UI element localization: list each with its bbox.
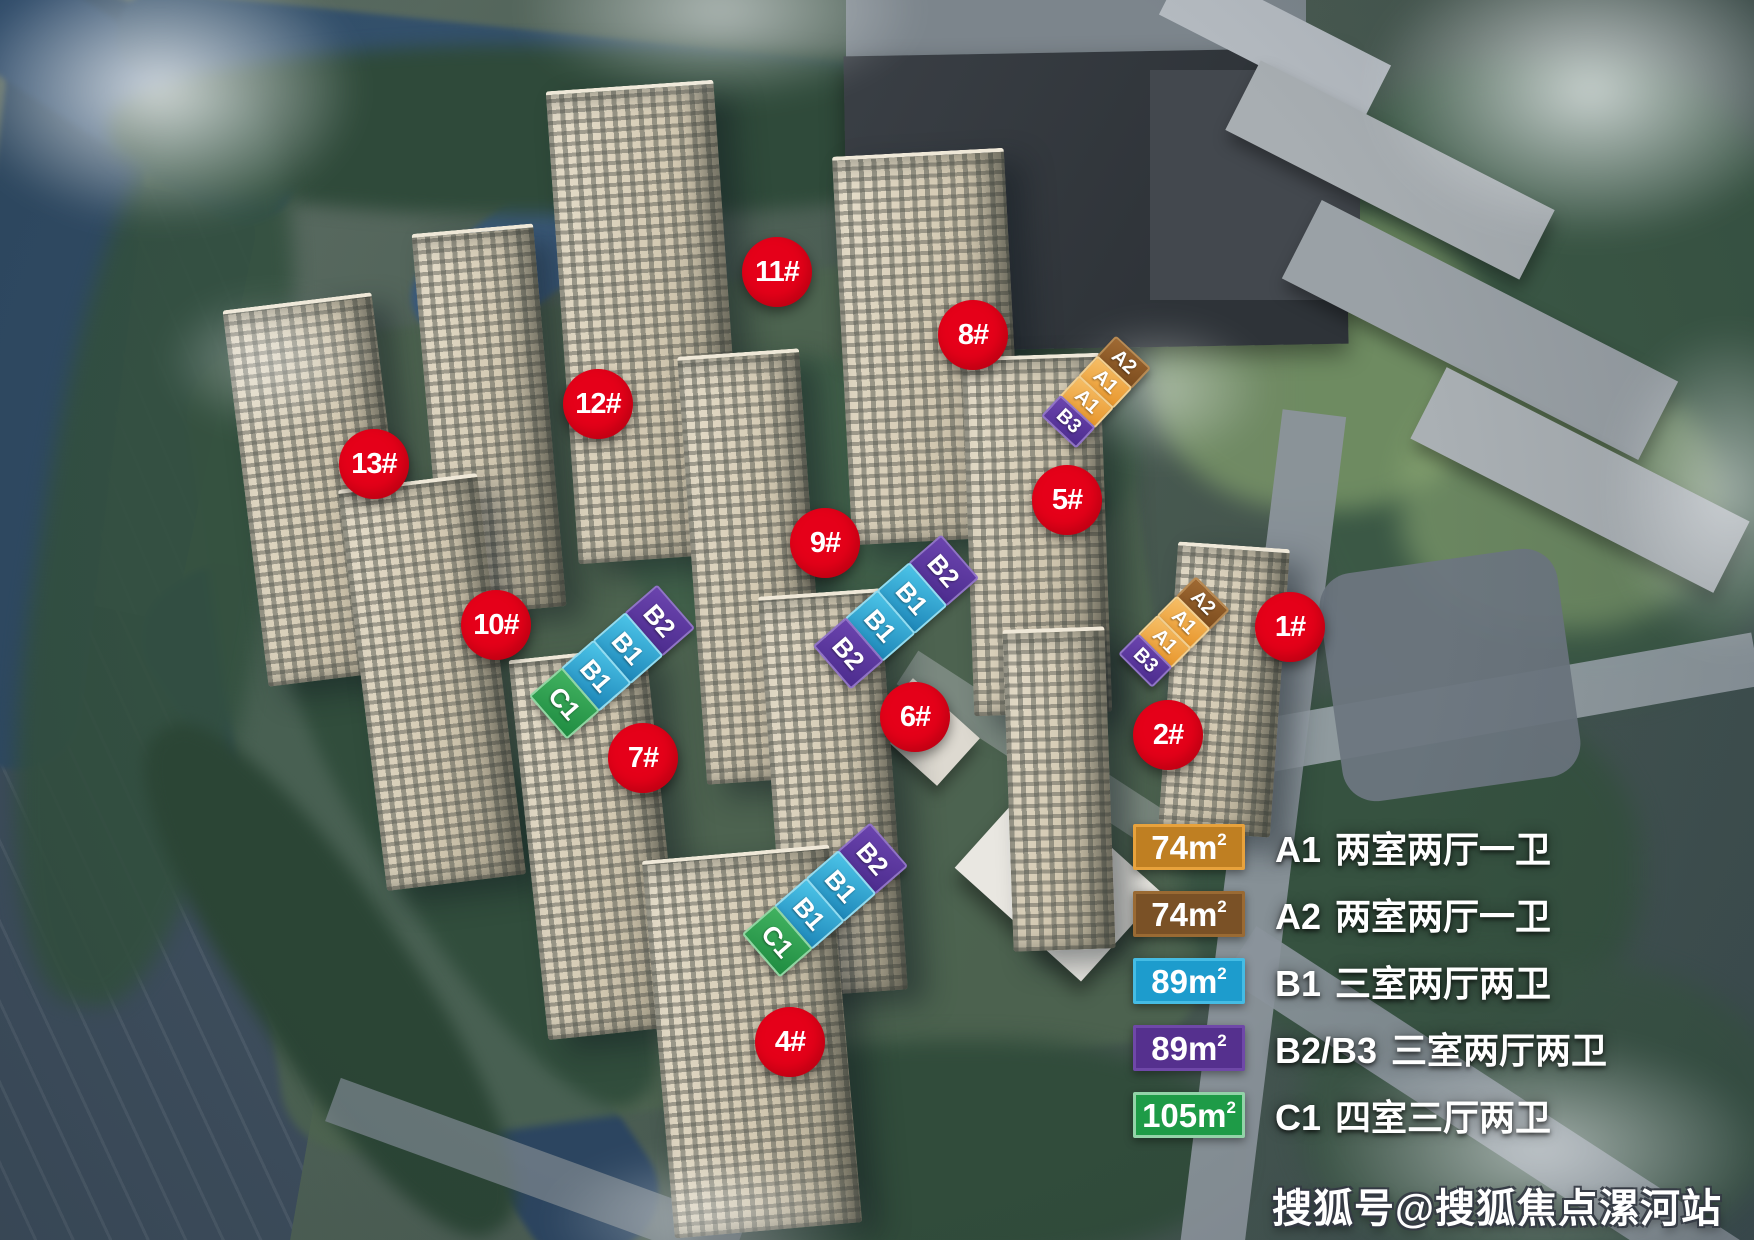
legend-label: A1两室两厅一卫 (1275, 821, 1551, 873)
mist (1010, 290, 1310, 490)
watermark: 搜狐号@搜狐焦点漯河站 (1272, 1176, 1722, 1234)
legend-area: 89m (1151, 965, 1217, 998)
legend-area: 74m (1151, 898, 1217, 931)
building-badge-6: 6# (880, 682, 950, 752)
site-plan-image: A2A1A1B3A2A1A1B3B2B1B1B2B2B1B1C1B2B1B1C1… (0, 0, 1754, 1240)
legend-swatch: 89m2 (1133, 958, 1245, 1004)
legend-desc: 两室两厅一卫 (1335, 896, 1551, 937)
legend-row: 105m2 C1四室三厅两卫 (1133, 1092, 1607, 1138)
legend-label: B1三室两厅两卫 (1275, 955, 1551, 1007)
legend-code: A2 (1275, 896, 1321, 937)
building-badge-5: 5# (1032, 465, 1102, 535)
legend-area-sup: 2 (1217, 898, 1226, 915)
building-badge-1: 1# (1255, 592, 1325, 662)
legend-swatch: 74m2 (1133, 891, 1245, 937)
mist (440, 0, 1000, 140)
mist (480, 1120, 940, 1240)
legend-swatch: 74m2 (1133, 824, 1245, 870)
legend-swatch: 105m2 (1133, 1092, 1245, 1138)
legend-desc: 四室三厅两卫 (1335, 1097, 1551, 1138)
building-badge-8: 8# (938, 300, 1008, 370)
mist (0, 0, 440, 280)
legend-desc: 三室两厅两卫 (1391, 1030, 1607, 1071)
building-badge-2: 2# (1133, 700, 1203, 770)
legend-row: 89m2 B2/B3三室两厅两卫 (1133, 1025, 1607, 1071)
legend-row: 74m2 A2两室两厅一卫 (1133, 891, 1607, 937)
legend-desc: 两室两厅一卫 (1335, 829, 1551, 870)
building-badge-9: 9# (790, 508, 860, 578)
building-badge-7: 7# (608, 723, 678, 793)
building-badge-13: 13# (339, 429, 409, 499)
legend-code: C1 (1275, 1097, 1321, 1138)
legend-label: C1四室三厅两卫 (1275, 1089, 1551, 1141)
mist (1280, 0, 1754, 300)
unit-legend: 74m2 A1两室两厅一卫 74m2 A2两室两厅一卫 89m2 B1三室两厅两… (1133, 824, 1607, 1138)
legend-area-sup: 2 (1226, 1099, 1235, 1116)
legend-row: 74m2 A1两室两厅一卫 (1133, 824, 1607, 870)
building-badge-12: 12# (563, 369, 633, 439)
mist (1560, 260, 1754, 720)
legend-label: A2两室两厅一卫 (1275, 888, 1551, 940)
legend-code: A1 (1275, 829, 1321, 870)
legend-desc: 三室两厅两卫 (1335, 963, 1551, 1004)
legend-area-sup: 2 (1217, 831, 1226, 848)
legend-row: 89m2 B1三室两厅两卫 (1133, 958, 1607, 1004)
building-badge-4: 4# (755, 1007, 825, 1077)
legend-area-sup: 2 (1217, 965, 1226, 982)
building-badge-10: 10# (461, 590, 531, 660)
legend-code: B2/B3 (1275, 1030, 1377, 1071)
legend-area: 105m (1142, 1099, 1226, 1132)
building-badge-11: 11# (742, 237, 812, 307)
legend-label: B2/B3三室两厅两卫 (1275, 1022, 1607, 1074)
legend-area: 74m (1151, 831, 1217, 864)
legend-code: B1 (1275, 963, 1321, 1004)
legend-area: 89m (1151, 1032, 1217, 1065)
legend-swatch: 89m2 (1133, 1025, 1245, 1071)
legend-area-sup: 2 (1217, 1032, 1226, 1049)
